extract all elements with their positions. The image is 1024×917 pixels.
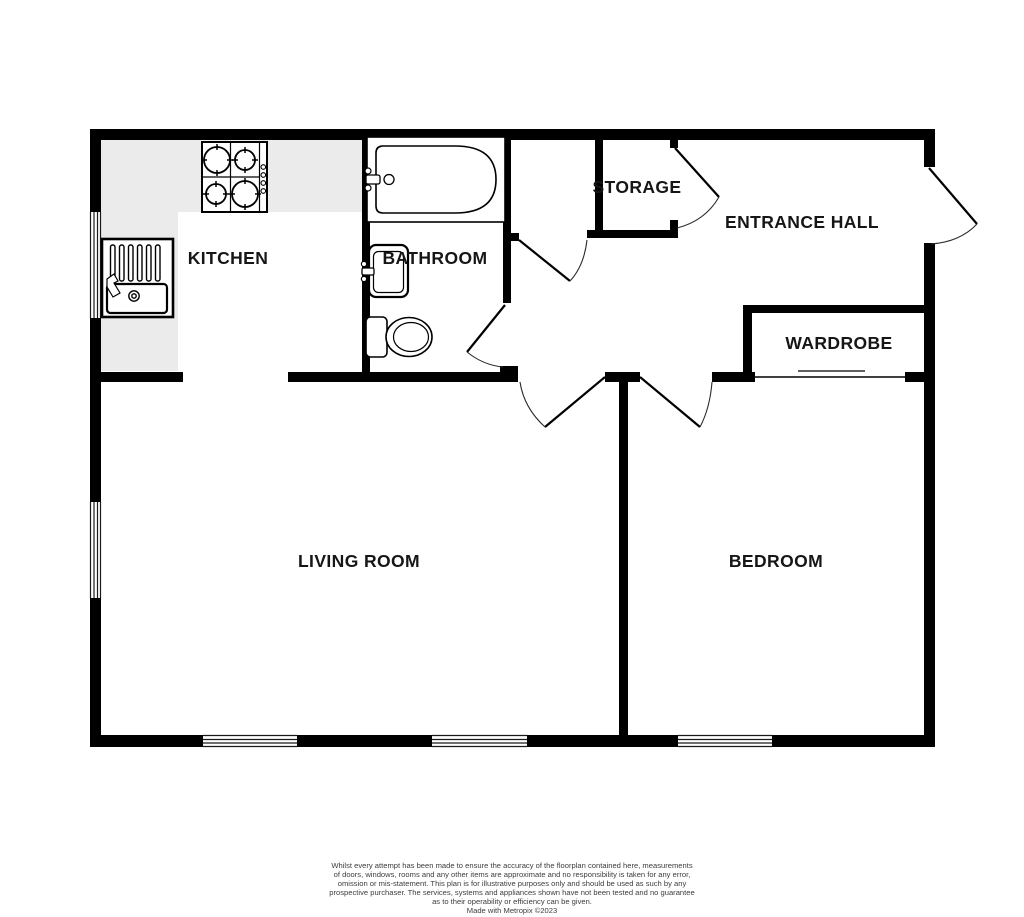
gas-hob — [201, 142, 267, 212]
room-label-bedroom: BEDROOM — [729, 551, 823, 571]
window-living-bottom-2 — [432, 736, 527, 747]
room-label-wardrobe: WARDROBE — [785, 333, 892, 353]
credit-line: Made with Metropix ©2023 — [0, 906, 1024, 915]
bedroom-door — [640, 377, 712, 427]
room-label-entrance-hall: ENTRANCE HALL — [725, 212, 879, 232]
storage-door — [675, 148, 719, 228]
living-room-door — [520, 377, 605, 427]
disclaimer-line: of doors, windows, rooms and any other i… — [0, 870, 1024, 879]
bathtub — [365, 137, 505, 222]
room-label-storage: STORAGE — [592, 177, 681, 197]
entrance-door — [929, 168, 977, 244]
room-label-kitchen: KITCHEN — [188, 248, 269, 268]
disclaimer-line: Whilst every attempt has been made to en… — [0, 861, 1024, 870]
toilet — [366, 317, 432, 357]
hall-inner-door — [519, 240, 587, 281]
room-label-bathroom: BATHROOM — [383, 248, 488, 268]
floorplan-drawing: KITCHEN BATHROOM STORAGE ENTRANCE HALL W… — [0, 0, 1024, 917]
room-label-living-room: LIVING ROOM — [298, 551, 420, 571]
disclaimer-line: prospective purchaser. The services, sys… — [0, 888, 1024, 897]
kitchen-sink — [102, 239, 173, 317]
window-bedroom-bottom — [678, 736, 772, 747]
floorplan-page: KITCHEN BATHROOM STORAGE ENTRANCE HALL W… — [0, 0, 1024, 917]
wardrobe-rail — [753, 371, 905, 377]
window-living-left — [91, 502, 101, 598]
bathroom-door — [467, 305, 505, 367]
disclaimer-text: Whilst every attempt has been made to en… — [0, 861, 1024, 915]
window-living-bottom-1 — [203, 736, 297, 747]
disclaimer-line: omission or mis-statement. This plan is … — [0, 879, 1024, 888]
window-kitchen-left — [91, 212, 101, 318]
disclaimer-line: as to their operability or efficiency ca… — [0, 897, 1024, 906]
